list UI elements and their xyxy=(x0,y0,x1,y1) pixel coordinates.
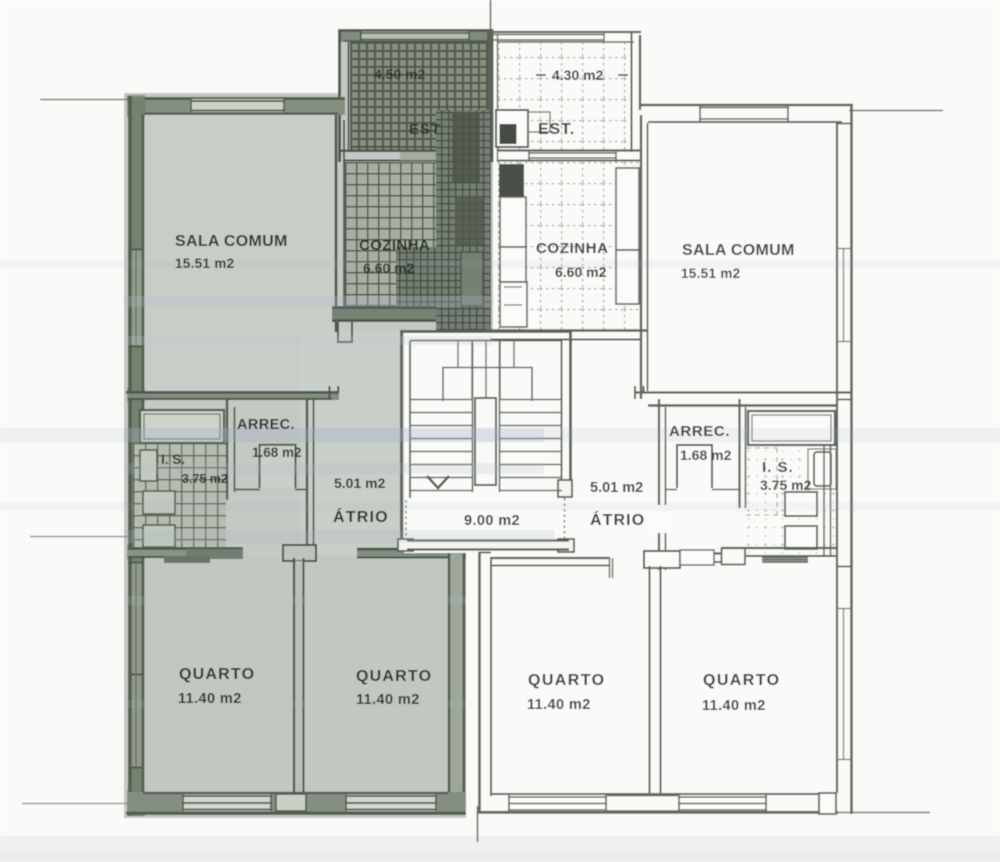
svg-text:I. S.: I. S. xyxy=(161,452,185,467)
svg-text:11.40 m2: 11.40 m2 xyxy=(178,691,242,707)
svg-text:ÁTRIO: ÁTRIO xyxy=(590,510,645,529)
svg-text:QUARTO: QUARTO xyxy=(703,672,780,689)
svg-text:QUARTO: QUARTO xyxy=(356,668,432,685)
svg-text:1.68 m2: 1.68 m2 xyxy=(252,445,302,460)
svg-text:COZINHA: COZINHA xyxy=(359,237,430,254)
svg-text:3.75 m2: 3.75 m2 xyxy=(760,477,812,493)
svg-text:COZINHA: COZINHA xyxy=(536,240,609,257)
svg-text:4.30 m2: 4.30 m2 xyxy=(552,67,604,83)
svg-text:ARREC.: ARREC. xyxy=(237,417,295,433)
svg-text:11.40 m2: 11.40 m2 xyxy=(702,698,766,714)
svg-text:5.01 m2: 5.01 m2 xyxy=(334,475,386,491)
svg-text:5.01 m2: 5.01 m2 xyxy=(590,480,643,496)
svg-text:11.40 m2: 11.40 m2 xyxy=(527,697,591,713)
svg-text:6.60 m2: 6.60 m2 xyxy=(555,264,607,280)
svg-text:ÁTRIO: ÁTRIO xyxy=(333,507,389,526)
svg-text:1.68 m2: 1.68 m2 xyxy=(680,447,732,463)
svg-text:QUARTO: QUARTO xyxy=(179,666,255,683)
svg-text:SALA COMUM: SALA COMUM xyxy=(682,242,795,259)
svg-text:15.51 m2: 15.51 m2 xyxy=(681,266,740,281)
svg-text:EST.: EST. xyxy=(538,121,575,138)
svg-text:11.40 m2: 11.40 m2 xyxy=(356,692,420,708)
svg-text:9.00 m2: 9.00 m2 xyxy=(464,513,520,529)
svg-text:3.75 m2: 3.75 m2 xyxy=(182,472,228,486)
svg-text:EST: EST xyxy=(409,121,441,138)
svg-text:ARREC.: ARREC. xyxy=(669,423,730,440)
svg-text:6.60 m2: 6.60 m2 xyxy=(363,260,415,276)
svg-text:4.50 m2: 4.50 m2 xyxy=(374,66,426,82)
svg-text:SALA COMUM: SALA COMUM xyxy=(175,233,288,250)
svg-text:I. S.: I. S. xyxy=(762,459,794,476)
svg-text:QUARTO: QUARTO xyxy=(528,672,605,689)
svg-text:15.51 m2: 15.51 m2 xyxy=(175,256,234,271)
